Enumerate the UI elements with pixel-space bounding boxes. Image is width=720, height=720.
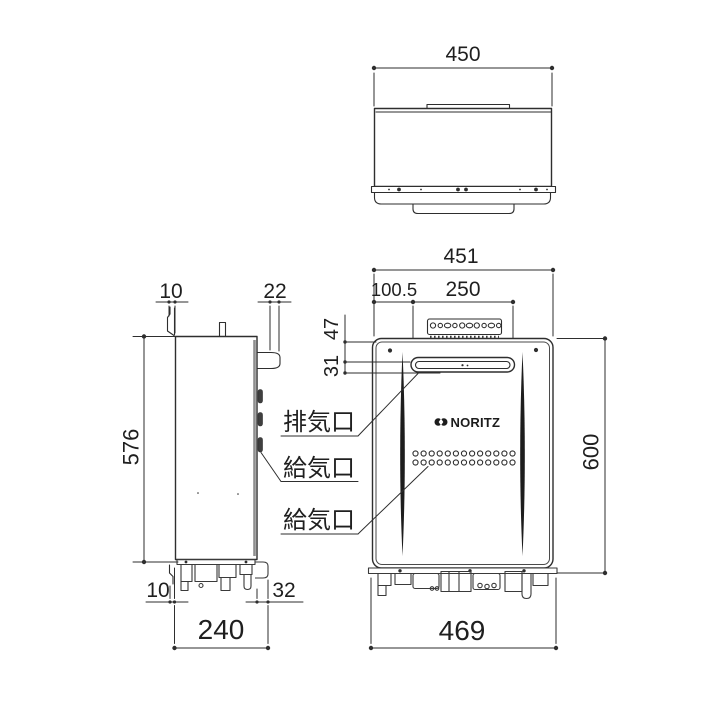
front-panel-bulge (375, 193, 551, 205)
dim-250-label: 250 (445, 278, 480, 301)
dim-31-label: 31 (321, 355, 343, 377)
front-screw-right (534, 348, 538, 352)
brand-text: NORITZ (451, 415, 501, 430)
dim-240-label: 240 (198, 614, 245, 645)
dim-front-bottom-width: 469 (369, 578, 558, 650)
dim-10-top-label: 10 (159, 280, 182, 303)
side-body (176, 337, 258, 560)
wall-bracket-top (168, 307, 175, 336)
dim-22-label: 22 (263, 280, 286, 303)
water-heater-three-view-drawing: 450 10 (0, 0, 720, 720)
front-screw-left (388, 348, 392, 352)
intake-port-side-label: 給気口 (261, 453, 358, 483)
dim-32-label: 32 (272, 579, 295, 602)
dim-side-top-back: 10 (156, 280, 188, 333)
intake-side-leader-line (261, 453, 281, 482)
side-view: 10 22 576 (119, 280, 304, 650)
svg-text:排気口: 排気口 (283, 409, 355, 436)
top-view: 450 (372, 43, 556, 214)
side-intake-slots (258, 390, 263, 453)
dim-side-depth: 240 (172, 606, 270, 651)
noritz-flower-icon (435, 418, 448, 425)
dim-600-label: 600 (579, 434, 604, 471)
dim-top-width: 450 (372, 43, 554, 106)
dim-47-label: 47 (321, 318, 343, 340)
drain-pipe (522, 574, 531, 599)
side-top-tab (220, 323, 226, 337)
exhaust-louver-top (413, 204, 514, 214)
dim-front-height: 600 (557, 336, 607, 575)
dim-side-bottom-front: 32 (246, 579, 303, 604)
svg-text:給気口: 給気口 (283, 507, 355, 534)
top-view-body (372, 105, 556, 214)
technical-drawing-page: 450 10 (0, 0, 720, 720)
dim-450-label: 450 (445, 43, 480, 66)
dim-side-height: 576 (119, 334, 179, 564)
dim-451-label: 451 (443, 245, 478, 268)
dim-10-bottom-label: 10 (146, 579, 169, 602)
bottom-piping-side (177, 560, 268, 591)
dim-side-bottom-back: 10 (146, 568, 188, 604)
bottom-piping-front (369, 568, 558, 599)
dim-side-top-front: 22 (258, 280, 291, 351)
exhaust-louver-side (258, 353, 281, 369)
dim-576-label: 576 (119, 429, 144, 466)
front-view: 451 100.5 250 (321, 245, 607, 650)
wall-bracket-bottom (170, 565, 174, 584)
svg-text:給気口: 給気口 (283, 455, 355, 482)
dim-100-5-label: 100.5 (371, 279, 417, 300)
dim-469-label: 469 (439, 615, 486, 646)
